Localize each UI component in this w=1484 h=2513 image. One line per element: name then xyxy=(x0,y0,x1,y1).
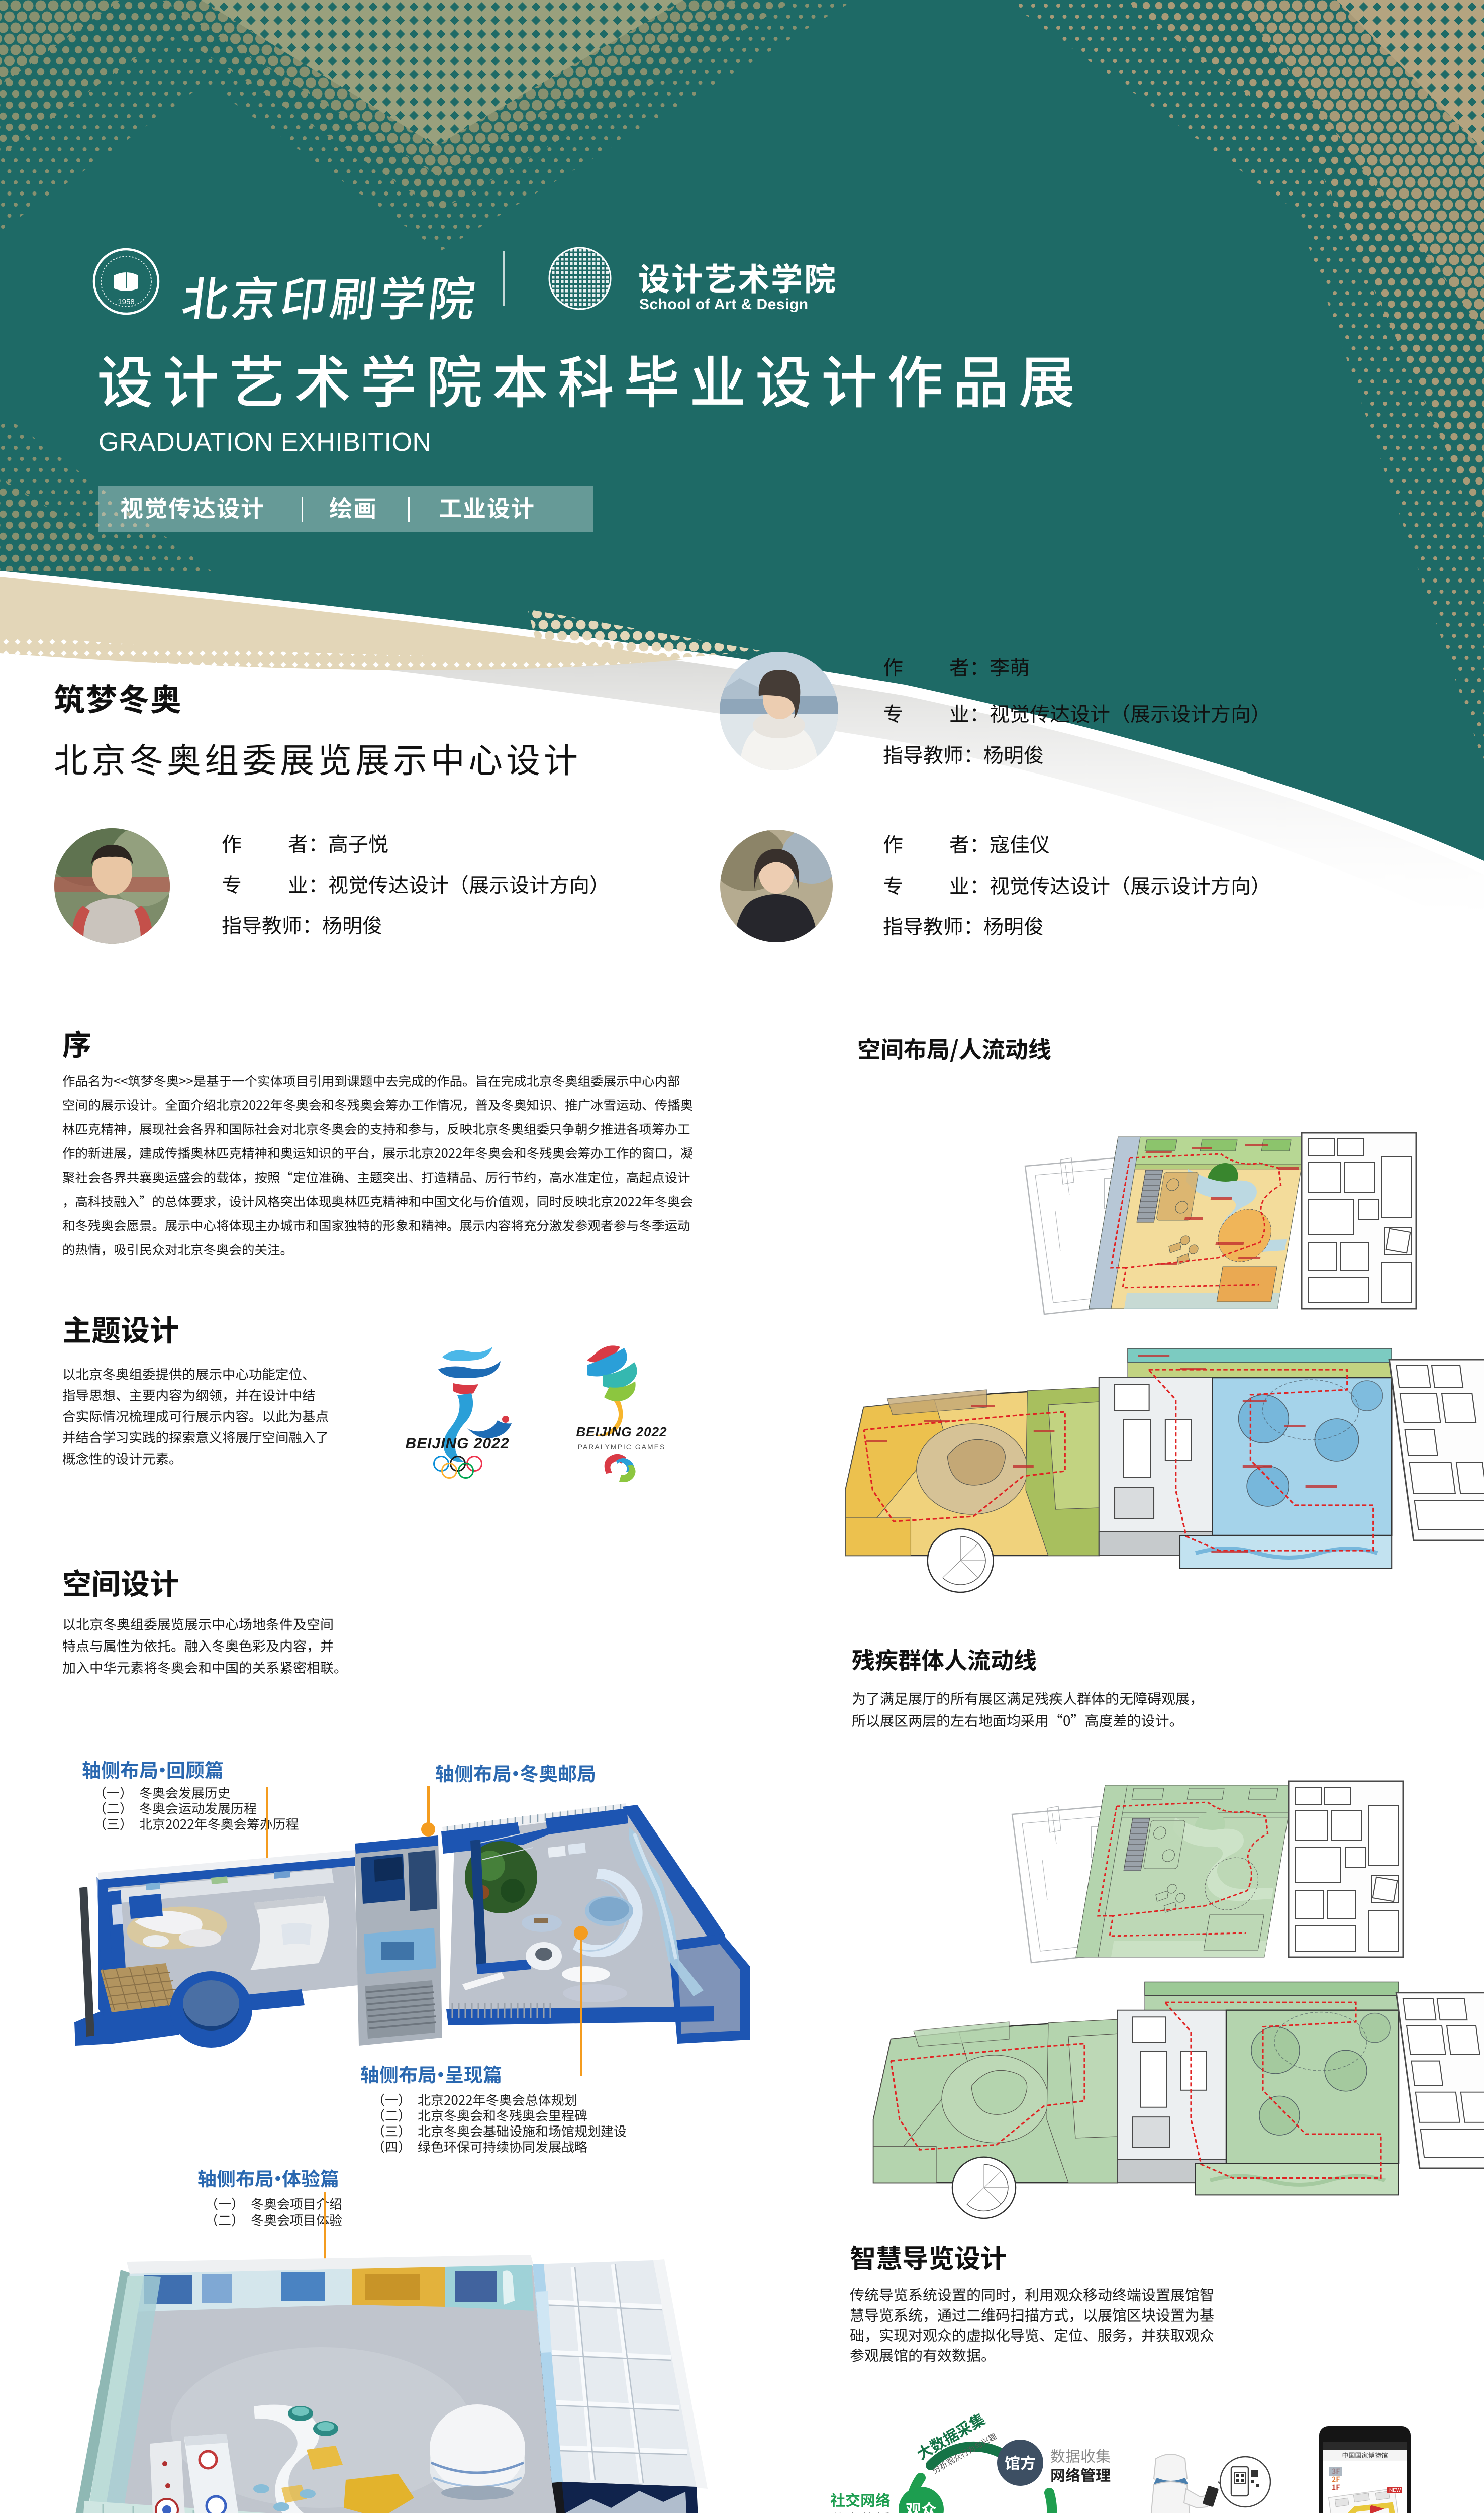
svg-text:BEIJING 2022: BEIJING 2022 xyxy=(405,1435,509,1452)
svg-text:1958: 1958 xyxy=(118,298,134,306)
svg-text:School of Art & Design: School of Art & Design xyxy=(639,296,809,313)
svg-text:NEW: NEW xyxy=(1389,2488,1401,2493)
svg-text:PARALYMPIC GAMES: PARALYMPIC GAMES xyxy=(578,1443,666,1451)
svg-text:BEIJING 2022: BEIJING 2022 xyxy=(576,1424,667,1439)
svg-text:GRADUATION EXHIBITION: GRADUATION EXHIBITION xyxy=(98,428,431,457)
